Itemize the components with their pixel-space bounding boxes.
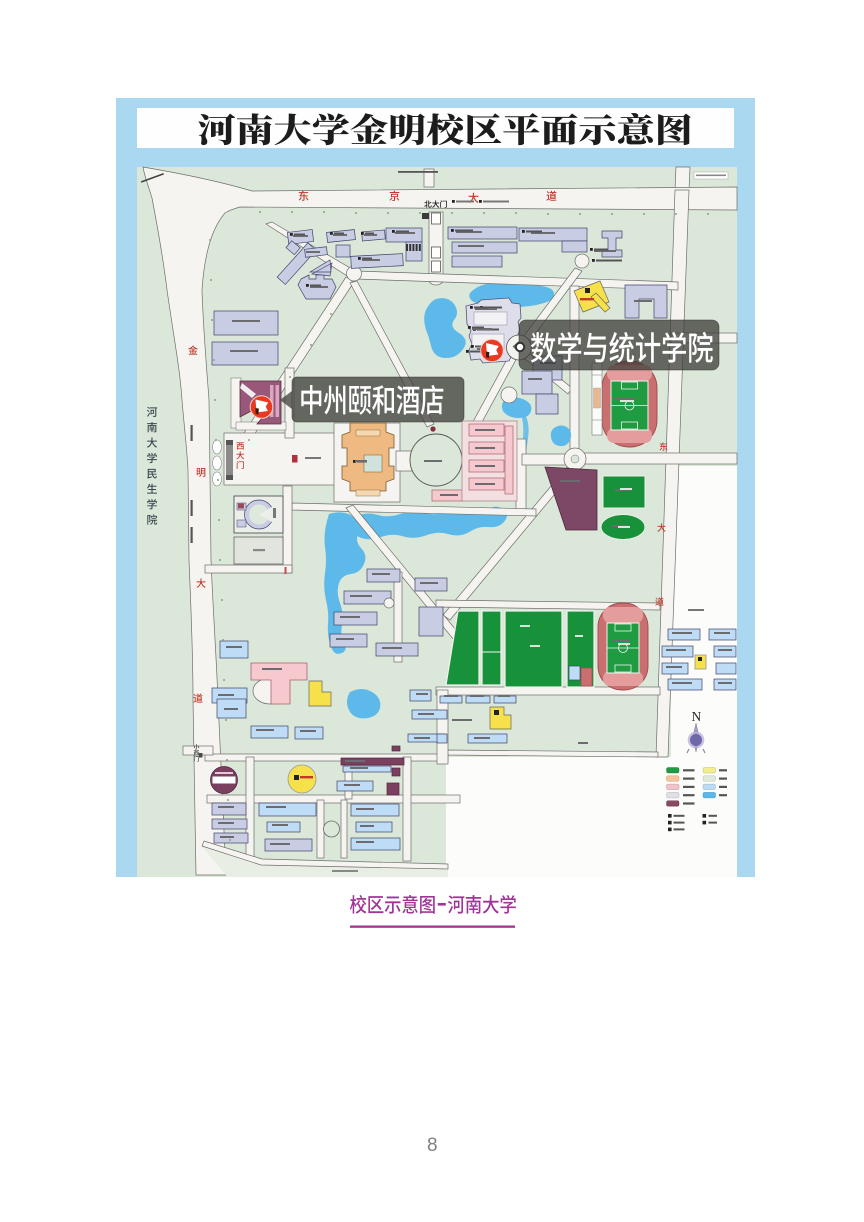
svg-text:8: 8	[427, 1135, 438, 1156]
svg-text:N: N	[692, 709, 702, 724]
